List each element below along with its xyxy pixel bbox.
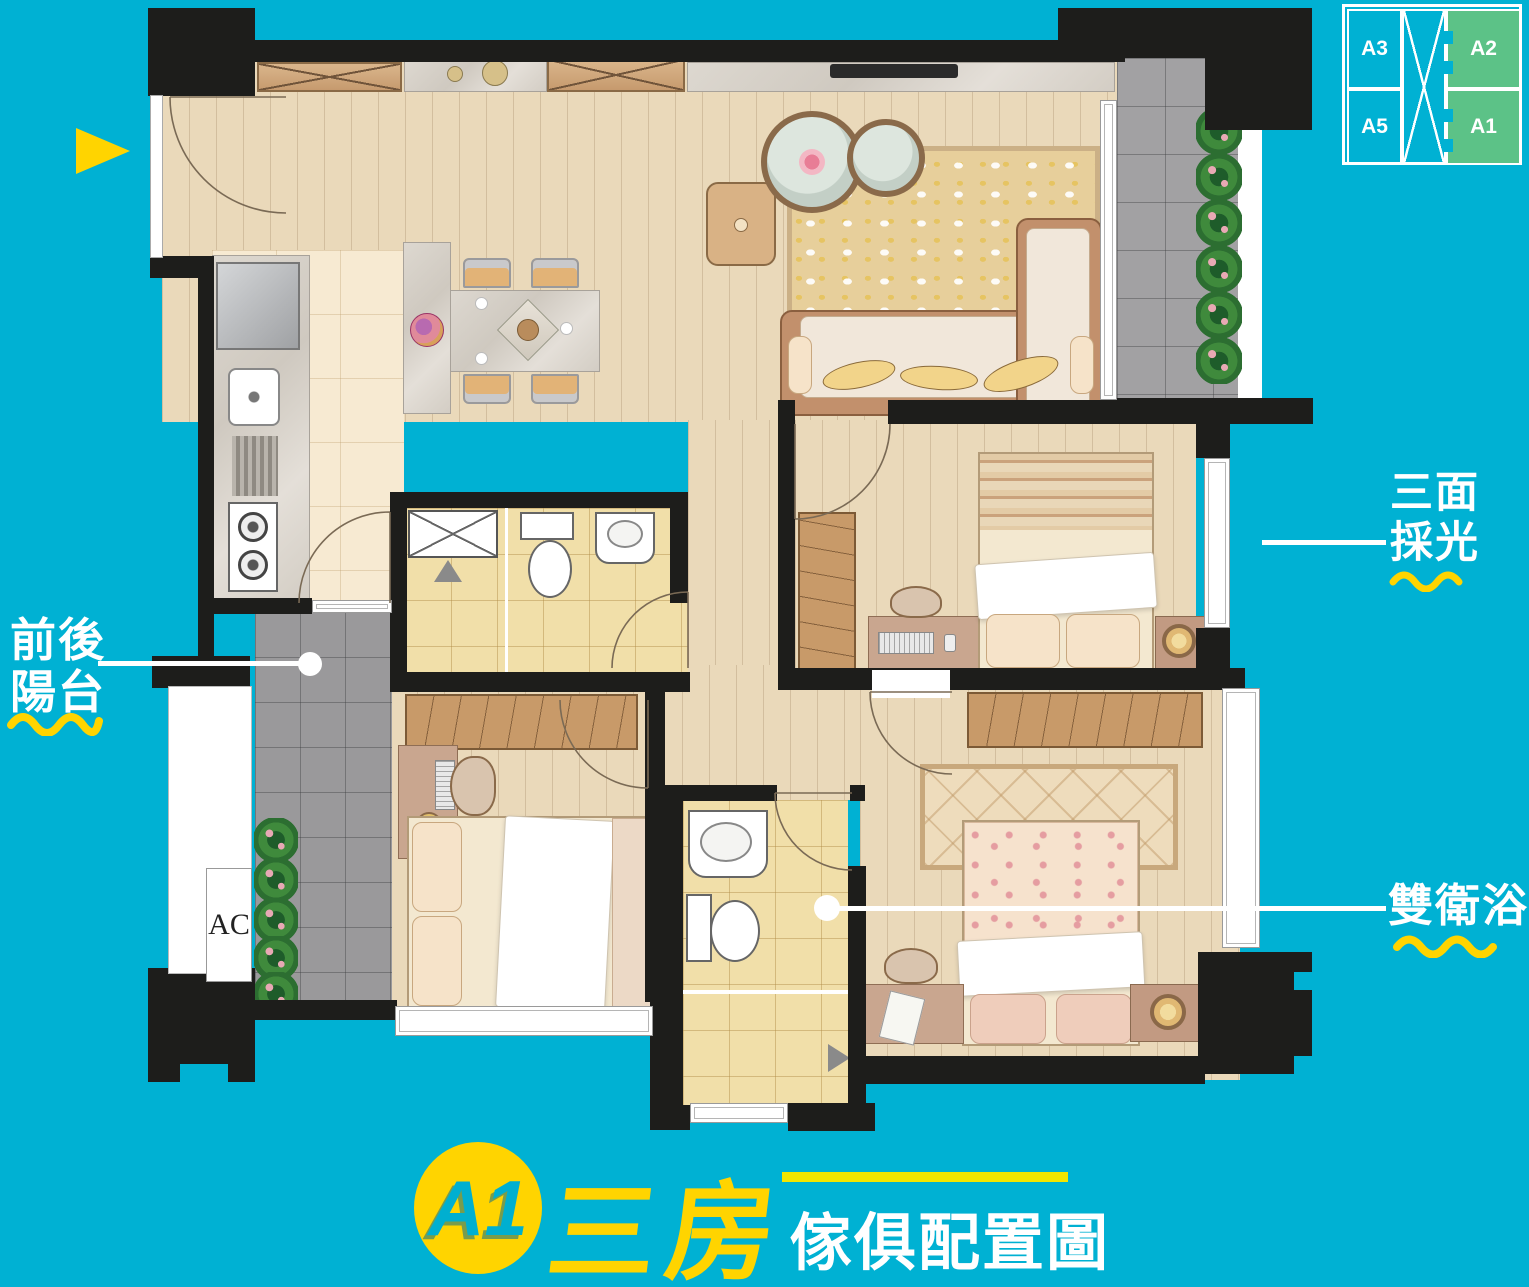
- planter-plant: [1196, 246, 1242, 292]
- table-plate: [560, 322, 573, 335]
- leader-dot-bathroom: [814, 895, 840, 921]
- column-notch: [1294, 972, 1312, 990]
- bathroom1-divider: [505, 508, 508, 676]
- key-plan: A3 A5 A2 A1: [1342, 4, 1522, 165]
- nightstand-lamp: [1150, 994, 1186, 1030]
- key-plan-notch: [1444, 139, 1453, 152]
- wall: [778, 424, 795, 690]
- key-plan-cell-a5: A5: [1347, 89, 1402, 165]
- key-plan-label-a3: A3: [1361, 37, 1388, 61]
- wall: [860, 1056, 1205, 1084]
- key-plan-notch: [1444, 31, 1453, 44]
- bed-blanket-floral: [964, 822, 1138, 942]
- entry-console: [404, 60, 547, 92]
- planter-plant: [254, 818, 298, 862]
- wave-underline-bathroom: [1392, 930, 1498, 958]
- bed-sheet-fold: [957, 931, 1146, 997]
- bed-pillow: [1056, 994, 1132, 1044]
- bed-blanket-striped: [980, 454, 1152, 530]
- toilet-tank: [520, 512, 574, 540]
- wall: [395, 492, 688, 508]
- console-bowl: [447, 66, 463, 82]
- nightstand-lamp: [1162, 624, 1196, 658]
- window: [690, 1103, 788, 1123]
- bathroom2-divider: [683, 990, 848, 994]
- shower-marker: [828, 1044, 850, 1072]
- key-plan-cell-a1: A1: [1446, 89, 1521, 165]
- bedroom2-wardrobe: [405, 694, 638, 750]
- planter-plant: [1196, 292, 1242, 338]
- title-subtitle: 傢俱配置圖: [790, 1192, 1110, 1282]
- key-plan-label-a5: A5: [1361, 115, 1388, 139]
- stove-burner: [238, 550, 268, 580]
- wall: [850, 785, 865, 801]
- storage-cabinet: [547, 58, 685, 92]
- window: [1204, 458, 1230, 628]
- bedroom2-chair: [450, 756, 496, 816]
- table-flowers: [799, 149, 825, 175]
- bedroom1-wardrobe: [798, 512, 856, 674]
- wall: [888, 400, 1240, 424]
- dining-chair: [531, 258, 579, 288]
- title-divider-line: [782, 1172, 1068, 1182]
- drain-board: [232, 436, 278, 496]
- wall: [670, 505, 688, 603]
- master-chair: [884, 948, 938, 984]
- wall: [645, 692, 665, 1002]
- key-plan-notch: [1444, 61, 1453, 74]
- wall: [148, 8, 255, 96]
- wall: [253, 40, 1125, 62]
- ac-unit: AC: [206, 868, 252, 982]
- title-headline: 三房: [540, 1146, 795, 1287]
- table-plate: [475, 297, 488, 310]
- callout-three-side-daylight: 三面 採光: [1390, 468, 1480, 568]
- wall: [212, 598, 312, 614]
- bed-sheet-fold: [495, 815, 615, 1012]
- dining-chair: [463, 374, 511, 404]
- key-plan-core-x-icon: [1402, 9, 1446, 165]
- key-plan-label-a1: A1: [1470, 115, 1497, 139]
- wall: [683, 785, 777, 801]
- column-notch: [180, 1064, 228, 1084]
- planter-plant: [254, 858, 298, 902]
- master-door-opening: [872, 670, 950, 698]
- toilet-tank: [686, 894, 712, 962]
- floorplan-poster: 前後 陽台 三面 採光 雙衛浴 AC A3 A5 A2 A1 A1 三房 傢俱配…: [0, 0, 1529, 1287]
- refrigerator: [216, 262, 300, 350]
- wall: [1205, 8, 1312, 130]
- floorplan-drawing: [0, 0, 1529, 1287]
- leader-line-bathroom: [838, 906, 1386, 911]
- callout-daylight-line2: 採光: [1390, 518, 1480, 568]
- planter-plant: [1196, 200, 1242, 246]
- wall: [198, 256, 214, 686]
- sink-basin: [607, 520, 643, 548]
- wave-underline-daylight: [1388, 566, 1472, 592]
- wall: [778, 400, 795, 424]
- desk-phone: [944, 634, 956, 652]
- stove-burner: [238, 512, 268, 542]
- planter-plant: [1196, 154, 1242, 200]
- ac-label: AC: [208, 908, 250, 942]
- bedroom1-chair: [890, 586, 942, 618]
- wall: [253, 1000, 397, 1020]
- wall: [788, 1103, 875, 1131]
- column-notch: [1294, 1056, 1312, 1074]
- bed-pillow: [986, 614, 1060, 668]
- bed-pillow: [412, 822, 462, 912]
- console-bowl: [482, 60, 508, 86]
- entry-door-opening: [150, 95, 163, 258]
- armrest-pillow: [1070, 336, 1094, 394]
- unit-badge: A1: [414, 1142, 542, 1274]
- callout-bathroom-text: 雙衛浴: [1388, 880, 1529, 932]
- shoe-cabinet: [257, 62, 402, 92]
- leader-line-daylight: [1262, 540, 1386, 545]
- bed-pillow: [970, 994, 1046, 1044]
- keyboard: [878, 632, 934, 654]
- dining-chair: [531, 374, 579, 404]
- wall: [665, 1105, 690, 1130]
- bathroom1-cabinet: [408, 510, 498, 558]
- callout-double-bathroom: 雙衛浴: [1388, 880, 1529, 932]
- key-plan-notch: [1444, 109, 1453, 122]
- toilet-bowl: [710, 900, 760, 962]
- master-wardrobe: [967, 692, 1203, 748]
- toilet-bowl: [528, 540, 572, 598]
- bed-pillow: [412, 916, 462, 1006]
- sink-basin: [700, 822, 752, 862]
- unit-badge-label: A1: [428, 1163, 528, 1254]
- center-tray: [517, 319, 539, 341]
- entry-arrow-icon: [76, 128, 130, 174]
- coffee-table-small: [847, 119, 925, 197]
- leader-dot-balcony: [298, 652, 322, 676]
- kitchen-sink: [228, 368, 280, 426]
- key-plan-label-a2: A2: [1470, 37, 1497, 61]
- wall: [665, 785, 683, 1130]
- flower-plate: [410, 313, 444, 347]
- planter-plant: [1196, 338, 1242, 384]
- television: [830, 64, 958, 78]
- key-plan-cell-a2: A2: [1446, 9, 1521, 89]
- dining-chair: [463, 258, 511, 288]
- bed-pillow: [1066, 614, 1140, 668]
- wall: [778, 668, 1245, 690]
- wall: [1196, 420, 1230, 458]
- callout-daylight-line1: 三面: [1390, 468, 1480, 518]
- wall: [1058, 8, 1208, 58]
- window: [312, 600, 392, 613]
- wave-underline-balcony: [6, 706, 104, 736]
- table-plate: [475, 352, 488, 365]
- callout-front-rear-balcony: 前後 陽台: [10, 614, 106, 718]
- window: [1100, 100, 1117, 400]
- side-table-dot: [734, 218, 748, 232]
- shower-marker: [434, 560, 462, 582]
- leader-line-balcony: [98, 661, 303, 666]
- armrest-pillow: [788, 336, 812, 394]
- window: [395, 1006, 653, 1036]
- wall: [390, 672, 690, 692]
- key-plan-cell-a3: A3: [1347, 9, 1402, 89]
- callout-balcony-line1: 前後: [10, 614, 106, 666]
